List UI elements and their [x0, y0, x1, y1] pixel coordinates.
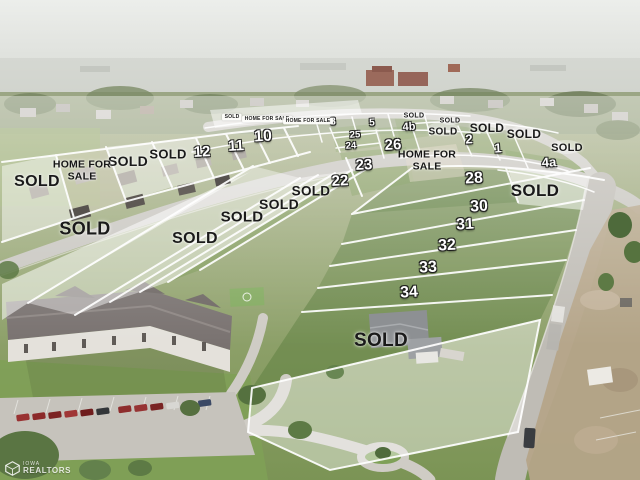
lot-number-label: 10: [254, 128, 273, 147]
sold-label: SOLD: [149, 147, 186, 162]
lot-number-label: 33: [419, 259, 438, 278]
lot-number-label: 30: [470, 198, 489, 217]
sold-label: SOLD: [551, 142, 583, 154]
lot-number-label: 28: [465, 170, 484, 189]
lot-number-label: 24: [345, 140, 356, 152]
lot-number-label: 2: [465, 131, 473, 146]
sold-label: SOLD: [108, 153, 148, 169]
brokerage-watermark: IOWA REALTORS: [5, 461, 71, 476]
lot-number-label: 32: [438, 237, 457, 256]
sold-label: SOLD: [59, 219, 110, 240]
lot-number-label: 12: [193, 143, 211, 161]
lot-labels-layer: SOLDSOLDSOLDSOLDSOLDSOLDSOLDSOLDSOLDSOLD…: [0, 0, 640, 480]
lot-number-label: 11: [228, 137, 245, 155]
sold-label: SOLD: [354, 330, 408, 352]
lot-sign-pill: SOLD: [222, 114, 242, 121]
lot-number-label: 5: [369, 117, 375, 128]
cube-logo-icon: [5, 461, 20, 476]
sold-label: SOLD: [404, 113, 425, 120]
home-for-sale-label: HOME FORSALE: [53, 159, 111, 182]
sold-label: SOLD: [429, 127, 458, 138]
sold-label: SOLD: [292, 184, 331, 199]
lot-number-label: 4a: [541, 154, 556, 170]
lot-sign-pill: HOME FOR SALE: [283, 118, 333, 125]
sold-label: SOLD: [221, 209, 264, 226]
listing-aerial-map: SOLDSOLDSOLDSOLDSOLDSOLDSOLDSOLDSOLDSOLD…: [0, 0, 640, 480]
lot-number-label: 4b: [402, 121, 415, 134]
sold-label: SOLD: [172, 230, 218, 248]
lot-number-label: 23: [355, 156, 373, 174]
lot-number-label: 22: [331, 172, 349, 190]
sold-label: SOLD: [511, 181, 559, 201]
lot-number-label: 1: [494, 140, 502, 155]
sold-label: SOLD: [470, 121, 505, 135]
watermark-line2: REALTORS: [23, 467, 71, 476]
lot-number-label: 34: [400, 284, 419, 303]
sold-label: SOLD: [507, 127, 542, 141]
lot-number-label: 25: [349, 129, 360, 141]
sold-label: SOLD: [440, 118, 461, 125]
home-for-sale-label: HOME FORSALE: [398, 149, 456, 172]
lot-number-label: 31: [456, 216, 475, 235]
